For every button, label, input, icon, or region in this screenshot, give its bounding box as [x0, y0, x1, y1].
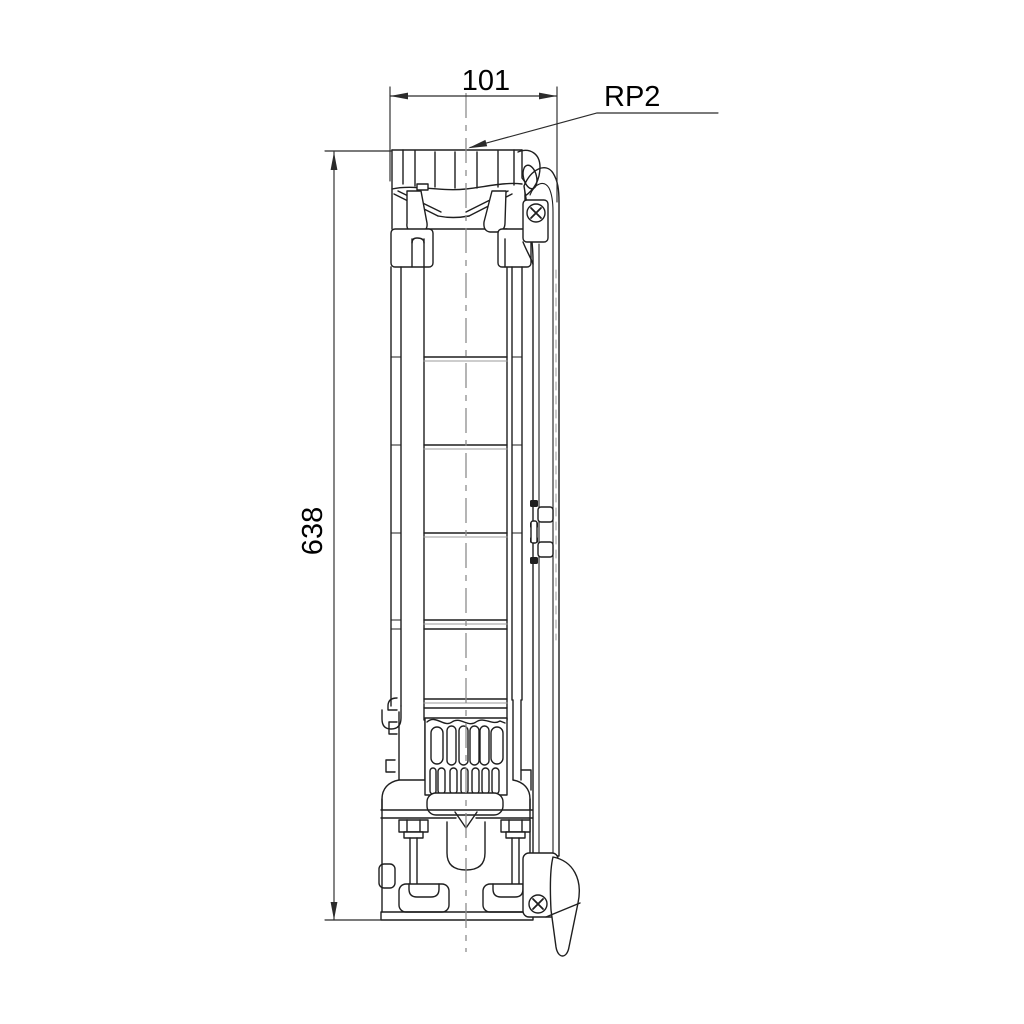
width-dimension-label: 101 [462, 65, 510, 97]
motor-stool [379, 799, 533, 920]
leader-line [470, 113, 718, 148]
arrowhead-left [390, 93, 408, 100]
discharge-head-cap [392, 150, 525, 232]
base-plate [381, 912, 533, 920]
arrowhead-bottom [331, 902, 338, 920]
arrowhead-right [539, 93, 557, 100]
leader-arrowhead [468, 140, 487, 148]
guard-bottom-bracket [523, 853, 580, 956]
drawing-page: 101 638 RP2 [0, 0, 1024, 1024]
left-hex-bolt [399, 820, 428, 886]
guard-top-screw [527, 204, 545, 222]
height-dimension-label: 638 [297, 507, 329, 555]
pump-dimensional-drawing: 101 638 RP2 [0, 0, 1024, 1024]
pump-outline [379, 150, 580, 956]
thread-label: RP2 [604, 81, 660, 113]
thread-callout [468, 113, 718, 148]
arrowhead-top [331, 152, 338, 170]
cable-guard [518, 150, 580, 956]
